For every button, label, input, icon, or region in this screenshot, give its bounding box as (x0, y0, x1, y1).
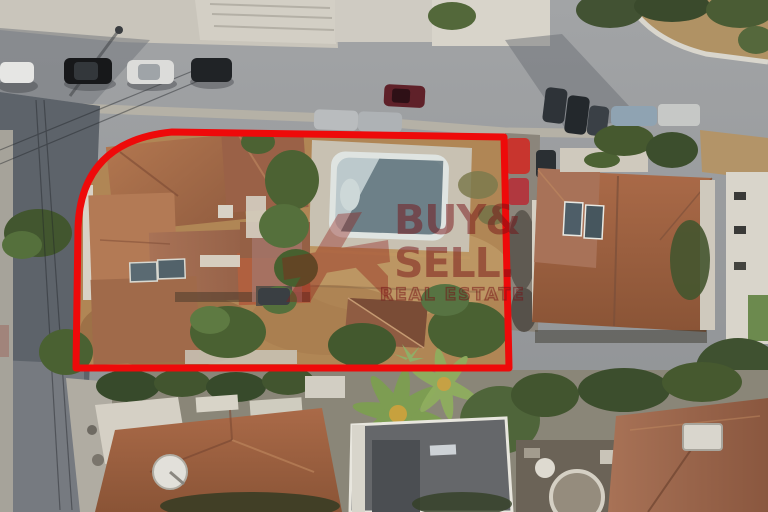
sports-court (748, 295, 768, 341)
chimney (218, 205, 233, 218)
parked-vehicle-in-plot (258, 288, 290, 305)
rooftop-unit (683, 424, 722, 450)
silver-car-2 (358, 111, 403, 133)
red-car-2 (508, 178, 529, 205)
red-car (506, 138, 530, 174)
van (658, 104, 700, 126)
silver-car (314, 109, 359, 131)
watermark-edge-fragment (0, 325, 9, 357)
solar-panels (130, 259, 186, 282)
bottom-neighborhood (95, 347, 768, 512)
round-turret (551, 471, 603, 512)
tree (594, 124, 654, 156)
blue-car (611, 106, 657, 126)
dark-suv (191, 58, 232, 82)
aerial-photo: BUY& SELL. REAL ESTATE (0, 0, 768, 512)
street-tree (428, 2, 476, 30)
white-car (0, 62, 34, 83)
scene-canvas (0, 0, 768, 512)
satellite-dish-small (535, 458, 555, 478)
